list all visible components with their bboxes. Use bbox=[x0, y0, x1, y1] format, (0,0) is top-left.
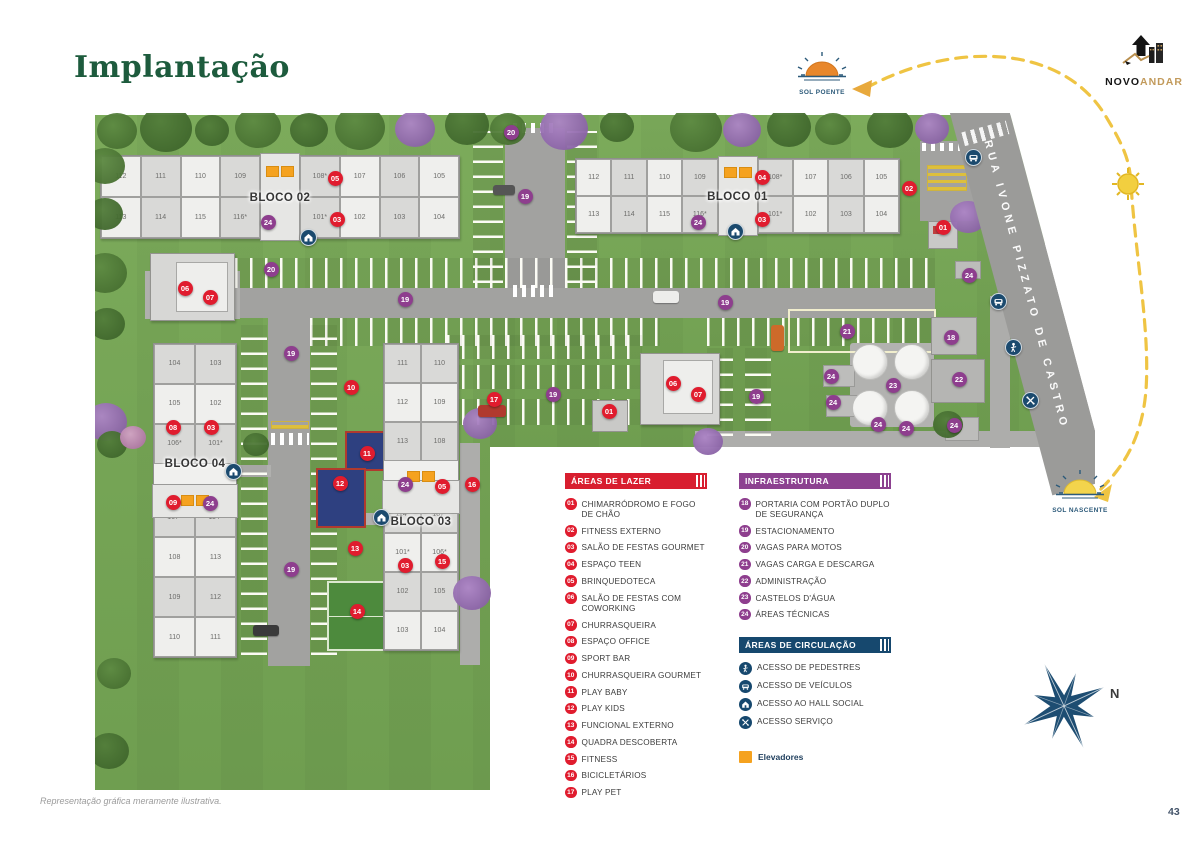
map-marker-03: 03 bbox=[204, 420, 219, 435]
unit-107: 107 bbox=[340, 156, 380, 197]
sun-nascente: SOL NASCENTE bbox=[1040, 470, 1120, 514]
legend-label: CHURRASQUEIRA bbox=[582, 619, 656, 631]
elevators-bloco-01 bbox=[724, 167, 752, 178]
building-bloco-02: 112111110109108*107106105 113114115116*1… bbox=[100, 155, 460, 239]
elevator-marker bbox=[739, 167, 752, 178]
legend-number-badge: 06 bbox=[565, 592, 577, 604]
legend-label: ACESSO DE PEDESTRES bbox=[757, 662, 860, 674]
unit-103: 103 bbox=[828, 196, 863, 233]
legend-item-18: 18PORTARIA COM PORTÃO DUPLO DE SEGURANÇA bbox=[739, 498, 891, 520]
legend-circulacao-title: ÁREAS DE CIRCULAÇÃO bbox=[745, 640, 856, 650]
map-marker-01: 01 bbox=[936, 220, 951, 235]
legend-label: PORTARIA COM PORTÃO DUPLO DE SEGURANÇA bbox=[756, 498, 892, 520]
legend-number-badge: 02 bbox=[565, 525, 577, 537]
legend-label: ÁREAS TÉCNICAS bbox=[756, 609, 830, 621]
unit-110: 110 bbox=[647, 159, 682, 196]
legend-label: ESPAÇO TEEN bbox=[582, 559, 642, 571]
legend-item-06: 06SALÃO DE FESTAS COM COWORKING bbox=[565, 592, 707, 614]
legend-number-badge: 21 bbox=[739, 559, 751, 571]
tree bbox=[97, 658, 131, 689]
legend-infra-header: INFRAESTRUTURA bbox=[739, 473, 891, 489]
map-marker-24: 24 bbox=[947, 418, 962, 433]
legend-number-badge: 16 bbox=[565, 770, 577, 782]
water-tank bbox=[894, 390, 930, 426]
map-marker-04: 04 bbox=[755, 170, 770, 185]
legend-number-badge: 04 bbox=[565, 559, 577, 571]
map-marker-21: 21 bbox=[840, 324, 855, 339]
parking-row bbox=[241, 325, 267, 655]
unit-115: 115 bbox=[181, 197, 221, 238]
map-marker-17: 17 bbox=[487, 392, 502, 407]
elevators-label: Elevadores bbox=[758, 752, 803, 762]
map-marker-14: 14 bbox=[350, 604, 365, 619]
map-marker-08: 08 bbox=[166, 420, 181, 435]
legend-number-badge: 14 bbox=[565, 736, 577, 748]
map-marker-13: 13 bbox=[348, 541, 363, 556]
legend-item-09: 09SPORT BAR bbox=[565, 653, 707, 665]
map-marker-24: 24 bbox=[691, 215, 706, 230]
service-icon bbox=[1022, 392, 1039, 409]
legend-number-badge: 11 bbox=[565, 686, 577, 698]
unit-113: 113 bbox=[195, 537, 236, 577]
logo-text: NOVOANDAR bbox=[1098, 76, 1190, 88]
legend-item-19: 19ESTACIONAMENTO bbox=[739, 525, 891, 537]
legend-infra-title: INFRAESTRUTURA bbox=[745, 476, 829, 486]
map-marker-19: 19 bbox=[718, 295, 733, 310]
hall-social-icon bbox=[373, 509, 390, 526]
legend-number-badge: 18 bbox=[739, 498, 751, 510]
unit-105: 105 bbox=[864, 159, 899, 196]
map-marker-06: 06 bbox=[666, 376, 681, 391]
unit-111: 111 bbox=[611, 159, 646, 196]
map-marker-03: 03 bbox=[398, 558, 413, 573]
legend-item-14: 14QUADRA DESCOBERTA bbox=[565, 736, 707, 748]
hall-social-icon bbox=[727, 223, 744, 240]
map-marker-20: 20 bbox=[264, 262, 279, 277]
legend-number-badge: 19 bbox=[739, 525, 751, 537]
map-marker-24: 24 bbox=[899, 421, 914, 436]
logo-text-novo: NOVO bbox=[1105, 76, 1140, 88]
map-marker-05: 05 bbox=[328, 171, 343, 186]
legend-number-badge: 20 bbox=[739, 542, 751, 554]
unit-107: 107 bbox=[793, 159, 828, 196]
map-marker-19: 19 bbox=[518, 189, 533, 204]
legend-item-24: 24ÁREAS TÉCNICAS bbox=[739, 609, 891, 621]
map-marker-15: 15 bbox=[435, 554, 450, 569]
legend-label: ACESSO DE VEÍCULOS bbox=[757, 680, 852, 692]
legend-number-badge: 01 bbox=[565, 498, 577, 510]
unit-114: 114 bbox=[611, 196, 646, 233]
legend-item-vehicle: ACESSO DE VEÍCULOS bbox=[739, 680, 891, 693]
unit-103: 103 bbox=[195, 344, 236, 384]
map-marker-24: 24 bbox=[203, 496, 218, 511]
unit-112: 112 bbox=[384, 383, 421, 422]
water-tank bbox=[894, 344, 930, 380]
map-marker-24: 24 bbox=[261, 215, 276, 230]
map-marker-24: 24 bbox=[398, 477, 413, 492]
legend-label: ESPAÇO OFFICE bbox=[582, 636, 650, 648]
unit-106: 106 bbox=[828, 159, 863, 196]
legend-item-02: 02FITNESS EXTERNO bbox=[565, 525, 707, 537]
leisure-building-center bbox=[640, 353, 720, 425]
legend-label: ESTACIONAMENTO bbox=[756, 525, 835, 537]
legend-number-badge: 24 bbox=[739, 609, 751, 621]
map-marker-24: 24 bbox=[871, 417, 886, 432]
unit-102: 102 bbox=[384, 572, 421, 611]
legend-item-12: 12PLAY KIDS bbox=[565, 703, 707, 715]
legend-label: VAGAS PARA MOTOS bbox=[756, 542, 842, 554]
legend-areas-de-lazer: ÁREAS DE LAZER 01CHIMARRÓDROMO E FOGO DE… bbox=[565, 473, 707, 798]
sun-poente-label: SOL POENTE bbox=[782, 89, 862, 96]
map-marker-24: 24 bbox=[962, 268, 977, 283]
crosswalk bbox=[513, 285, 557, 297]
legend-item-15: 15FITNESS bbox=[565, 753, 707, 765]
legend-label: FITNESS EXTERNO bbox=[582, 525, 661, 537]
legend-label: ACESSO SERVIÇO bbox=[757, 716, 833, 728]
legend-label: FITNESS bbox=[582, 753, 618, 765]
elevator-swatch bbox=[739, 751, 752, 763]
unit-104: 104 bbox=[421, 611, 458, 650]
crosswalk bbox=[271, 433, 309, 445]
legend-number-badge: 03 bbox=[565, 542, 577, 554]
legend-label: SPORT BAR bbox=[582, 653, 631, 665]
legend-number-badge: 08 bbox=[565, 636, 577, 648]
map-marker-03: 03 bbox=[755, 212, 770, 227]
legend-label: PLAY BABY bbox=[582, 686, 628, 698]
map-marker-19: 19 bbox=[749, 389, 764, 404]
legend-label: CHURRASQUEIRA GOURMET bbox=[582, 669, 702, 681]
bloco-02-label: BLOCO 02 bbox=[250, 192, 311, 204]
legend-item-20: 20VAGAS PARA MOTOS bbox=[739, 542, 891, 554]
elevator-marker bbox=[281, 166, 294, 177]
map-marker-20: 20 bbox=[504, 125, 519, 140]
map-marker-19: 19 bbox=[398, 292, 413, 307]
map-marker-19: 19 bbox=[284, 562, 299, 577]
legend-label: BICICLETÁRIOS bbox=[582, 770, 647, 782]
pedestrian-icon bbox=[739, 662, 752, 675]
page-title: Implantação bbox=[74, 50, 290, 85]
unit-105: 105 bbox=[154, 384, 195, 424]
map-marker-05: 05 bbox=[435, 479, 450, 494]
pedestrian-icon bbox=[1005, 339, 1022, 356]
elevator-marker bbox=[181, 495, 194, 506]
legend-item-22: 22ADMINISTRAÇÃO bbox=[739, 575, 891, 587]
novoandar-logo: NOVOANDAR bbox=[1098, 34, 1190, 88]
map-marker-01: 01 bbox=[602, 404, 617, 419]
logo-mark-icon bbox=[1121, 34, 1167, 70]
unit-111: 111 bbox=[141, 156, 181, 197]
legend-number-badge: 17 bbox=[565, 787, 577, 799]
unit-113: 113 bbox=[576, 196, 611, 233]
bloco-01-label: BLOCO 01 bbox=[707, 191, 768, 203]
tree bbox=[915, 113, 949, 144]
unit-103: 103 bbox=[380, 197, 420, 238]
legend-item-08: 08ESPAÇO OFFICE bbox=[565, 636, 707, 648]
footer-disclaimer: Representação gráfica meramente ilustrat… bbox=[40, 796, 222, 806]
sun-poente: SOL POENTE bbox=[782, 52, 862, 96]
unit-110: 110 bbox=[154, 617, 195, 657]
legend-label: QUADRA DESCOBERTA bbox=[582, 736, 678, 748]
elevators-bloco-02 bbox=[266, 166, 294, 177]
hall-social-icon bbox=[225, 463, 242, 480]
map-marker-07: 07 bbox=[203, 290, 218, 305]
legend-infra-list: 18PORTARIA COM PORTÃO DUPLO DE SEGURANÇA… bbox=[739, 498, 891, 621]
logo-text-andar: ANDAR bbox=[1140, 76, 1183, 88]
hall-social-icon bbox=[739, 698, 752, 711]
unit-104: 104 bbox=[154, 344, 195, 384]
map-marker-16: 16 bbox=[465, 477, 480, 492]
legend-number-badge: 10 bbox=[565, 669, 577, 681]
car bbox=[771, 325, 784, 351]
legend-lazer-list: 01CHIMARRÓDROMO E FOGO DE CHÃO02FITNESS … bbox=[565, 498, 707, 798]
compass-rose-icon bbox=[1008, 658, 1120, 754]
legend-label: ADMINISTRAÇÃO bbox=[756, 575, 827, 587]
vehicle-icon bbox=[990, 293, 1007, 310]
unit-105: 105 bbox=[419, 156, 459, 197]
unit-112: 112 bbox=[195, 577, 236, 617]
legend-number-badge: 23 bbox=[739, 592, 751, 604]
legend-item-hall-social: ACESSO AO HALL SOCIAL bbox=[739, 698, 891, 711]
service-icon bbox=[739, 716, 752, 729]
unit-115: 115 bbox=[647, 196, 682, 233]
legend-item-pedestrian: ACESSO DE PEDESTRES bbox=[739, 662, 891, 675]
elevator-marker bbox=[724, 167, 737, 178]
legend-label: CHIMARRÓDROMO E FOGO DE CHÃO bbox=[582, 498, 708, 520]
legend-item-04: 04ESPAÇO TEEN bbox=[565, 559, 707, 571]
tree bbox=[600, 113, 634, 142]
legend-number-badge: 15 bbox=[565, 753, 577, 765]
legend-item-03: 03SALÃO DE FESTAS GOURMET bbox=[565, 542, 707, 554]
legend-label: FUNCIONAL EXTERNO bbox=[582, 720, 674, 732]
legend-number-badge: 22 bbox=[739, 575, 751, 587]
unit-106: 106 bbox=[380, 156, 420, 197]
leisure-building-west bbox=[150, 253, 235, 321]
legend-item-10: 10CHURRASQUEIRA GOURMET bbox=[565, 669, 707, 681]
unit-102: 102 bbox=[793, 196, 828, 233]
map-marker-09: 09 bbox=[166, 495, 181, 510]
map-marker-10: 10 bbox=[344, 380, 359, 395]
unit-110: 110 bbox=[421, 344, 458, 383]
legend-elevators: Elevadores bbox=[739, 751, 891, 763]
legend-item-11: 11PLAY BABY bbox=[565, 686, 707, 698]
speed-bump bbox=[271, 421, 309, 429]
tree bbox=[97, 113, 137, 149]
sun-nascente-label: SOL NASCENTE bbox=[1040, 507, 1120, 514]
sunrise-icon bbox=[1054, 470, 1106, 502]
unit-108: 108 bbox=[154, 537, 195, 577]
car bbox=[253, 625, 279, 636]
map-marker-24: 24 bbox=[826, 395, 841, 410]
unit-109: 109 bbox=[154, 577, 195, 617]
legend-label: BRINQUEDOTECA bbox=[582, 575, 656, 587]
bloco-03-label: BLOCO 03 bbox=[391, 516, 452, 528]
map-marker-11: 11 bbox=[360, 446, 375, 461]
legend-number-badge: 12 bbox=[565, 703, 577, 715]
water-tank bbox=[852, 344, 888, 380]
unit-108: 108 bbox=[421, 422, 458, 461]
map-marker-06: 06 bbox=[178, 281, 193, 296]
legend-item-07: 07CHURRASQUEIRA bbox=[565, 619, 707, 631]
tree bbox=[453, 576, 491, 610]
unit-103: 103 bbox=[384, 611, 421, 650]
parking-row bbox=[473, 131, 503, 283]
elevator-marker bbox=[422, 471, 435, 482]
unit-109: 109 bbox=[220, 156, 260, 197]
legend-number-badge: 13 bbox=[565, 720, 577, 732]
entrance-markings bbox=[927, 165, 967, 191]
vehicle-icon bbox=[965, 149, 982, 166]
map-marker-24: 24 bbox=[824, 369, 839, 384]
unit-102: 102 bbox=[195, 384, 236, 424]
unit-104: 104 bbox=[864, 196, 899, 233]
central-parking-road bbox=[268, 316, 310, 666]
page-number: 43 bbox=[1168, 806, 1180, 818]
parking-row bbox=[447, 365, 642, 389]
unit-104: 104 bbox=[419, 197, 459, 238]
legend-lazer-title: ÁREAS DE LAZER bbox=[571, 476, 651, 486]
unit-110: 110 bbox=[181, 156, 221, 197]
legend-label: SALÃO DE FESTAS GOURMET bbox=[582, 542, 705, 554]
legend-circulacao-list: ACESSO DE PEDESTRESACESSO DE VEÍCULOSACE… bbox=[739, 662, 891, 729]
tree bbox=[693, 428, 723, 455]
legend-label: CASTELOS D'ÁGUA bbox=[756, 592, 836, 604]
legend-label: SALÃO DE FESTAS COM COWORKING bbox=[582, 592, 708, 614]
legend-label: ACESSO AO HALL SOCIAL bbox=[757, 698, 864, 710]
map-marker-22: 22 bbox=[952, 372, 967, 387]
brochure-page: Implantação NOVOANDAR SOL POENTE bbox=[0, 0, 1200, 841]
car bbox=[478, 405, 506, 417]
parking-row bbox=[447, 335, 642, 359]
legend-item-service: ACESSO SERVIÇO bbox=[739, 716, 891, 729]
legend-lazer-header: ÁREAS DE LAZER bbox=[565, 473, 707, 489]
legend-number-badge: 05 bbox=[565, 575, 577, 587]
sun-on-arc-icon bbox=[1112, 168, 1144, 200]
legend-item-05: 05BRINQUEDOTECA bbox=[565, 575, 707, 587]
bloco-04-label: BLOCO 04 bbox=[165, 458, 226, 470]
map-marker-12: 12 bbox=[333, 476, 348, 491]
map-marker-19: 19 bbox=[546, 387, 561, 402]
unit-102: 102 bbox=[340, 197, 380, 238]
building-bloco-03: 111112113114*101*102103 110109108107*106… bbox=[383, 343, 459, 651]
legend-item-21: 21VAGAS CARGA E DESCARGA bbox=[739, 559, 891, 571]
legend-item-16: 16BICICLETÁRIOS bbox=[565, 770, 707, 782]
legend-label: PLAY KIDS bbox=[582, 703, 625, 715]
map-marker-19: 19 bbox=[284, 346, 299, 361]
vehicle-icon bbox=[739, 680, 752, 693]
car bbox=[653, 291, 679, 303]
legend-number-badge: 09 bbox=[565, 653, 577, 665]
unit-109: 109 bbox=[421, 383, 458, 422]
legend-item-01: 01CHIMARRÓDROMO E FOGO DE CHÃO bbox=[565, 498, 707, 520]
unit-111: 111 bbox=[384, 344, 421, 383]
unit-113: 113 bbox=[384, 422, 421, 461]
map-marker-23: 23 bbox=[886, 378, 901, 393]
map-marker-02: 02 bbox=[902, 181, 917, 196]
legend-item-23: 23CASTELOS D'ÁGUA bbox=[739, 592, 891, 604]
tree bbox=[723, 113, 761, 147]
legend-item-17: 17PLAY PET bbox=[565, 787, 707, 799]
sunset-icon bbox=[796, 52, 848, 84]
legend-item-13: 13FUNCIONAL EXTERNO bbox=[565, 720, 707, 732]
legend-circulacao-header: ÁREAS DE CIRCULAÇÃO bbox=[739, 637, 891, 653]
compass-north-label: N bbox=[1110, 686, 1119, 701]
unit-112: 112 bbox=[576, 159, 611, 196]
tree bbox=[290, 113, 328, 147]
legend-right-column: INFRAESTRUTURA 18PORTARIA COM PORTÃO DUP… bbox=[739, 473, 891, 763]
legend-number-badge: 07 bbox=[565, 619, 577, 631]
map-marker-03: 03 bbox=[330, 212, 345, 227]
legend-label: VAGAS CARGA E DESCARGA bbox=[756, 559, 875, 571]
unit-111: 111 bbox=[195, 617, 236, 657]
map-marker-07: 07 bbox=[691, 387, 706, 402]
unit-114: 114 bbox=[141, 197, 181, 238]
elevator-marker bbox=[266, 166, 279, 177]
tree bbox=[195, 115, 229, 146]
car bbox=[493, 185, 515, 195]
hall-social-icon bbox=[300, 229, 317, 246]
map-marker-18: 18 bbox=[944, 330, 959, 345]
legend-label: PLAY PET bbox=[582, 787, 622, 799]
